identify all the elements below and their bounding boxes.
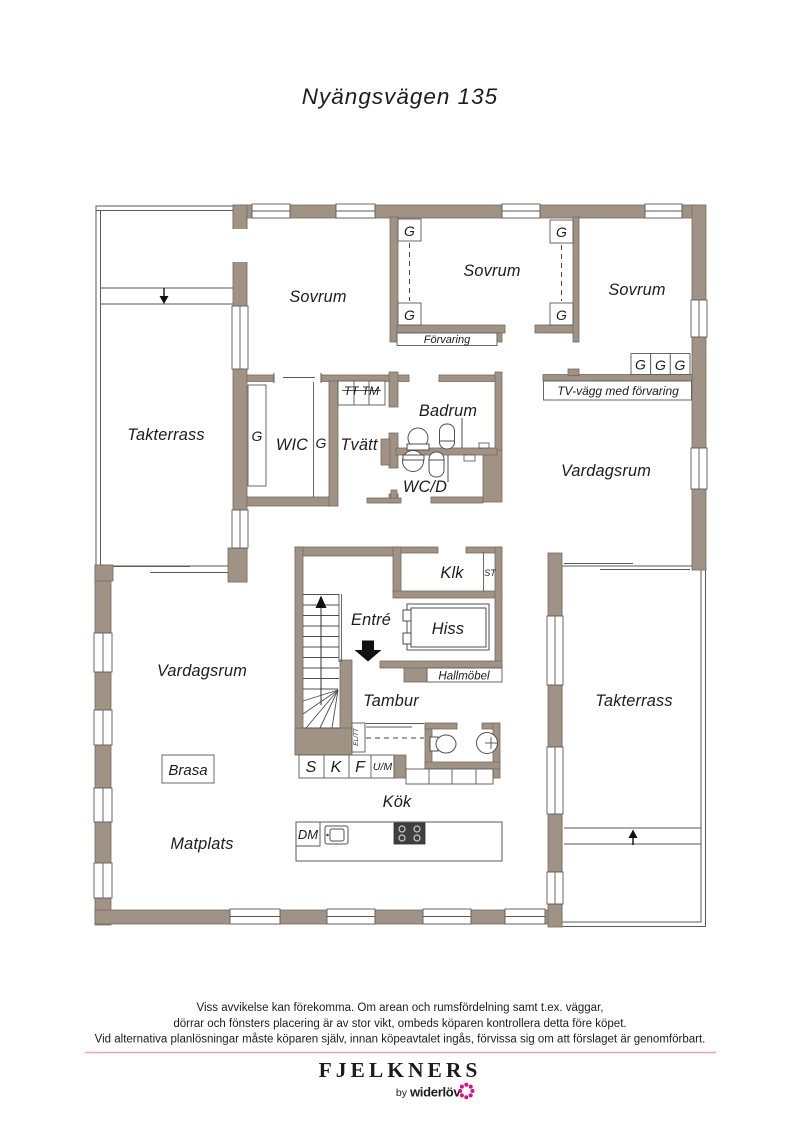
svg-text:G: G	[252, 428, 263, 444]
svg-text:Klk: Klk	[440, 564, 464, 582]
svg-text:Takterrass: Takterrass	[127, 426, 204, 444]
svg-text:dörrar och fönsters placering: dörrar och fönsters placering är av stor…	[173, 1018, 626, 1030]
svg-text:G: G	[316, 435, 327, 451]
svg-text:G: G	[404, 307, 415, 323]
svg-text:DM: DM	[298, 827, 318, 842]
svg-text:G: G	[556, 224, 567, 240]
svg-text:G: G	[675, 357, 686, 373]
svg-text:Takterrass: Takterrass	[595, 692, 672, 710]
svg-text:Hiss: Hiss	[432, 620, 464, 638]
svg-text:G: G	[635, 357, 646, 373]
svg-text:Vid alternativa planlösningar: Vid alternativa planlösningar måste köpa…	[95, 1034, 706, 1046]
svg-text:Förvaring: Förvaring	[424, 334, 471, 346]
svg-text:Matplats: Matplats	[170, 835, 233, 853]
svg-text:Sovrum: Sovrum	[289, 288, 346, 306]
svg-text:G: G	[556, 307, 567, 323]
svg-text:Viss avvikelse kan förekomma.: Viss avvikelse kan förekomma. Om arean o…	[197, 1002, 604, 1014]
svg-text:TV-vägg med förvaring: TV-vägg med förvaring	[557, 384, 679, 398]
svg-text:G: G	[655, 357, 666, 373]
svg-text:Tvätt: Tvätt	[340, 436, 378, 454]
svg-text:K: K	[331, 759, 343, 776]
svg-text:Nyängsvägen 135: Nyängsvägen 135	[302, 84, 498, 109]
svg-text:TT TM: TT TM	[344, 384, 379, 398]
svg-text:Vardagsrum: Vardagsrum	[157, 662, 247, 680]
svg-text:S: S	[306, 759, 317, 776]
svg-text:Tambur: Tambur	[363, 692, 419, 710]
svg-text:Brasa: Brasa	[168, 762, 207, 779]
svg-text:Sovrum: Sovrum	[608, 281, 665, 299]
svg-text:G: G	[404, 223, 415, 239]
svg-text:by: by	[396, 1087, 408, 1099]
svg-text:Sovrum: Sovrum	[463, 262, 520, 280]
svg-text:ST: ST	[484, 568, 497, 578]
svg-text:Vardagsrum: Vardagsrum	[561, 462, 651, 480]
svg-text:Kök: Kök	[383, 793, 412, 811]
svg-text:FJELKNERS: FJELKNERS	[319, 1058, 482, 1082]
svg-text:widerlöv: widerlöv	[409, 1085, 461, 1100]
svg-text:EL/TT: EL/TT	[353, 727, 360, 746]
svg-text:F: F	[355, 759, 366, 776]
svg-text:WIC: WIC	[276, 436, 308, 454]
svg-text:Badrum: Badrum	[419, 402, 477, 420]
svg-text:Hallmöbel: Hallmöbel	[438, 671, 490, 683]
svg-text:WC/D: WC/D	[403, 478, 447, 496]
svg-text:Entré: Entré	[351, 611, 391, 629]
svg-text:U/M: U/M	[373, 761, 393, 773]
